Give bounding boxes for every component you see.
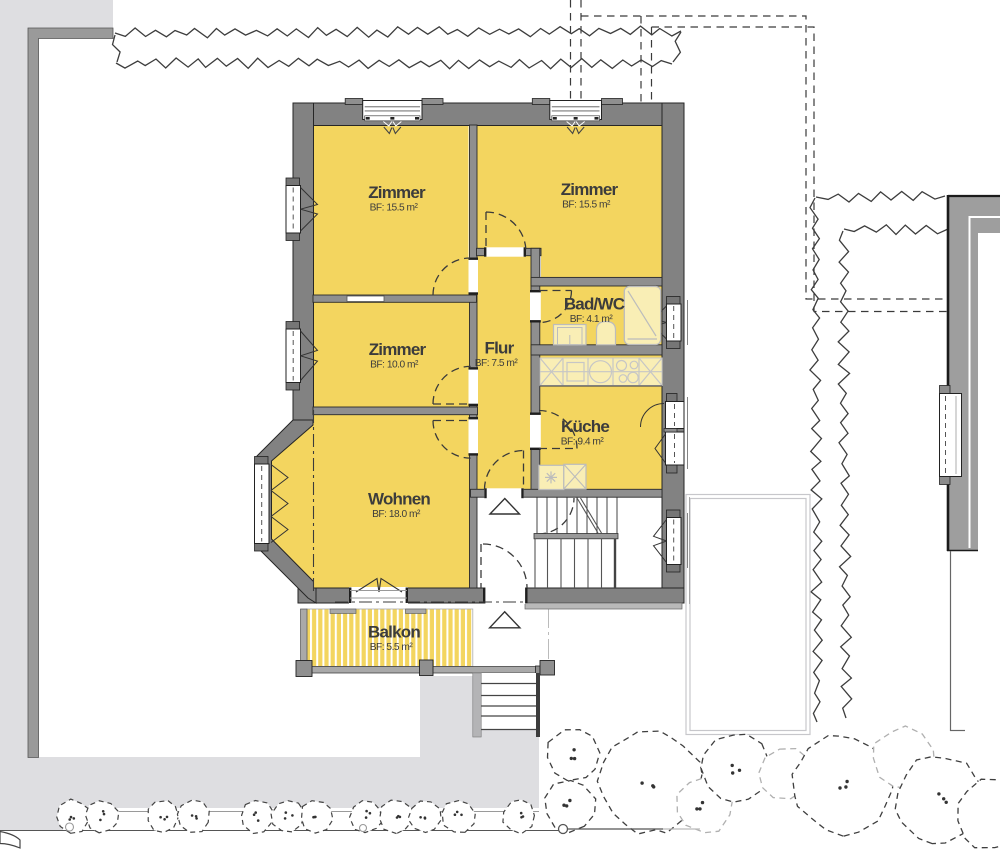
svg-text:BF: 15.5 m²: BF: 15.5 m² xyxy=(562,200,611,211)
svg-text:BF: 7.5 m²: BF: 7.5 m² xyxy=(475,358,519,369)
svg-text:Wohnen: Wohnen xyxy=(368,490,430,509)
svg-text:Balkon: Balkon xyxy=(368,623,420,642)
svg-text:BF: 5.5 m²: BF: 5.5 m² xyxy=(370,642,414,653)
svg-text:Zimmer: Zimmer xyxy=(561,180,619,199)
svg-text:Zimmer: Zimmer xyxy=(369,340,427,359)
svg-text:Flur: Flur xyxy=(485,339,515,358)
svg-text:BF: 18.0 m²: BF: 18.0 m² xyxy=(372,509,421,520)
svg-text:BF: 10.0 m²: BF: 10.0 m² xyxy=(370,360,419,371)
svg-text:BF: 4.1 m²: BF: 4.1 m² xyxy=(570,314,614,325)
svg-text:Zimmer: Zimmer xyxy=(368,183,426,202)
svg-text:BF: 15.5 m²: BF: 15.5 m² xyxy=(370,203,419,214)
svg-text:BF: 9.4 m²: BF: 9.4 m² xyxy=(561,437,605,448)
svg-text:Bad/WC: Bad/WC xyxy=(564,295,625,314)
svg-text:Küche: Küche xyxy=(561,417,609,436)
